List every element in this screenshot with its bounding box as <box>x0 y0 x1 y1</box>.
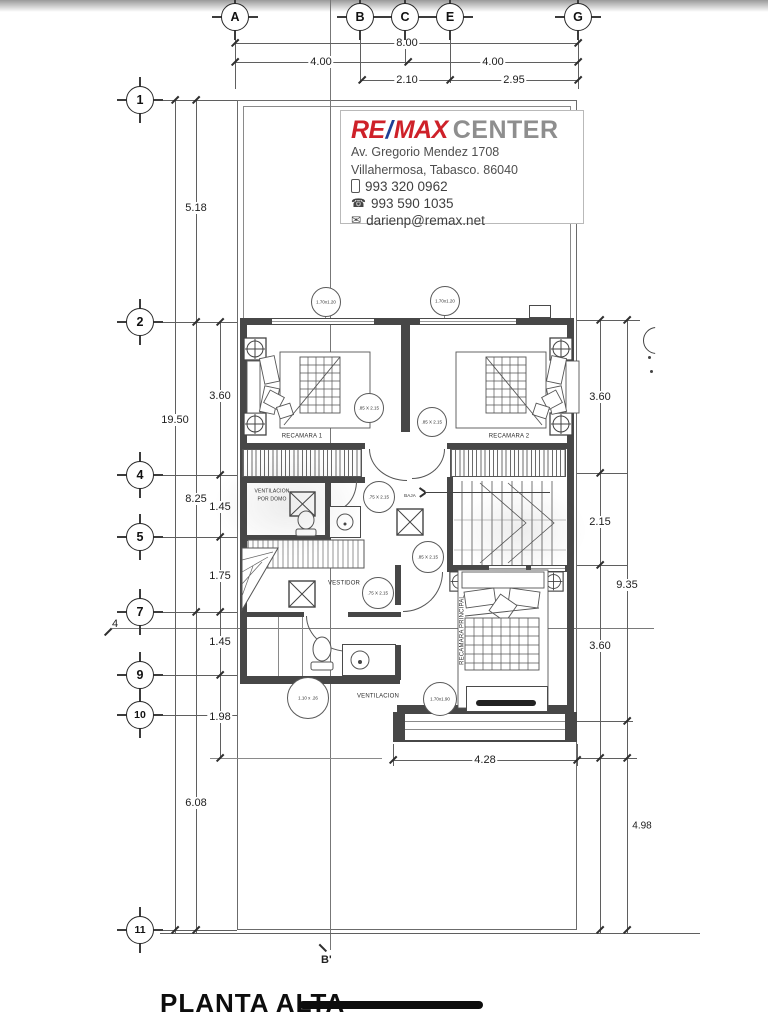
room-label-master: RECAMARA PRINCIPAL <box>457 572 468 688</box>
dim-chain-right-seg <box>600 320 601 933</box>
dim-ext-right-5 <box>577 758 637 759</box>
axis-label: 1 <box>126 86 154 114</box>
partial-circle-artifact <box>643 327 670 354</box>
toilet-vent-room <box>292 510 320 538</box>
dimension-label: 1.98 <box>207 711 232 723</box>
window-bedroom2 <box>420 318 516 325</box>
axis-bubble-11: 11 <box>117 907 163 953</box>
axis-label: 11 <box>126 916 154 944</box>
dimension-label: 2.95 <box>501 74 526 86</box>
telephone-icon: ☎ <box>351 196 366 211</box>
tag-door-bedroom1: .85 X 2.15 <box>354 393 384 423</box>
dot-artifact <box>650 370 653 373</box>
dim-chain-left-seg <box>220 322 221 758</box>
dimension-label: 6.08 <box>183 797 208 809</box>
section-b-arrow <box>319 944 327 952</box>
axis-bubble-5: 5 <box>117 514 163 560</box>
dimension-label: 4.98 <box>630 821 653 832</box>
dimension-label: 3.60 <box>207 390 232 402</box>
dimension-label: 4.00 <box>308 56 333 68</box>
remax-logo-re: RE <box>351 116 385 144</box>
axis-bubble-1: 1 <box>117 77 163 123</box>
office-address-line2: Villahermosa, Tabasco. 86040 <box>351 163 573 178</box>
remax-logo-max: MAX <box>394 116 448 144</box>
axis-label: G <box>564 3 592 31</box>
sink-vent-room <box>335 512 355 532</box>
dimension-label: 3.60 <box>587 391 612 403</box>
toilet-bathroom <box>306 636 338 674</box>
axis-bubble-10: 10 <box>117 692 163 738</box>
axis-bubble-2: 2 <box>117 299 163 345</box>
dimension-label: 1.45 <box>207 501 232 513</box>
master-band-cap-left <box>393 712 405 742</box>
axis-bubble-C: C <box>382 0 428 40</box>
stair-direction-line <box>424 492 550 493</box>
tag-window-bedroom2: 1.70x1.20 <box>430 286 460 316</box>
axis-bubble-G: G <box>555 0 601 40</box>
dimension-label: 4.28 <box>472 754 497 766</box>
axis-label: 9 <box>126 661 154 689</box>
remax-logo-slash: / <box>385 116 394 144</box>
office-phone-number: 993 590 1035 <box>371 195 454 212</box>
section-a-arrow <box>104 628 112 636</box>
mobile-phone-icon <box>351 179 360 193</box>
window-bedroom1 <box>272 318 374 325</box>
room-label-stairs-down: BAJA <box>397 491 423 502</box>
closet-bedroom2 <box>450 449 566 477</box>
master-band-line2 <box>405 729 565 730</box>
bed-bedroom1 <box>244 333 374 433</box>
dim-chain-right-total <box>627 320 628 933</box>
patio-bottom-line <box>210 758 382 759</box>
axis-bubble-4: 4 <box>117 452 163 498</box>
axis-bubble-A: A <box>212 0 258 40</box>
tag-door-vent-room: .75 X 2.15 <box>363 481 395 513</box>
section-b-prime-label: B' <box>321 954 332 966</box>
yard-inner-line-top <box>243 106 571 107</box>
remax-logo: RE/MAXCENTER <box>351 117 573 143</box>
master-band-cap-right <box>565 712 577 742</box>
mobile-phone-number: 993 320 0962 <box>365 178 448 195</box>
tag-window-bathroom: 1.10 x .26 <box>287 677 329 719</box>
email-address: darienp@remax.net <box>366 212 485 229</box>
dimension-label: 5.18 <box>183 202 208 214</box>
stairs-winder <box>240 538 366 612</box>
axis-label: 4 <box>126 461 154 489</box>
closet-bedroom1 <box>242 449 362 477</box>
dim-ext-right-1 <box>577 320 640 321</box>
axis-label: 7 <box>126 598 154 626</box>
sink-bathroom <box>348 648 372 672</box>
tag-door-hall: .85 X 2.15 <box>412 541 444 573</box>
dot-artifact <box>648 356 651 359</box>
dim-ext-bottom-left <box>393 744 394 766</box>
master-band-line1 <box>405 721 565 722</box>
bath-divider-line-2 <box>302 617 303 676</box>
tag-window-bedroom1: 1.70x1.20 <box>311 287 341 317</box>
axis-bubble-7: 7 <box>117 589 163 635</box>
room-label-vent-line2: POR DOMO <box>243 494 301 505</box>
title-strike-bar <box>299 1001 483 1009</box>
wall-bath-top-left <box>240 612 304 617</box>
dimension-label: 8.25 <box>183 493 208 505</box>
wall-bedroom-divider <box>401 318 410 432</box>
master-window-band <box>393 712 577 742</box>
skylight-hall <box>396 508 424 536</box>
dimension-label: 3.60 <box>587 640 612 652</box>
dim-baseline-bottom <box>160 933 700 934</box>
axis-label: A <box>221 3 249 31</box>
dimension-label: 1.45 <box>207 636 232 648</box>
dimension-label: 19.50 <box>159 414 191 426</box>
dim-chain-left-total <box>175 100 176 933</box>
axis-label: B <box>346 3 374 31</box>
dimension-label: 1.75 <box>207 570 232 582</box>
dimension-label: 4.00 <box>480 56 505 68</box>
dim-ext-bottom-right <box>577 744 578 766</box>
dim-ext-right-3 <box>577 565 627 566</box>
axis-bubble-E: E <box>427 0 473 40</box>
dimension-label: 2.15 <box>587 516 612 528</box>
tag-door-dressing: .75 X 2.15 <box>362 577 394 609</box>
dim-ext-right-2 <box>577 473 627 474</box>
room-label-bedroom2: RECAMARA 2 <box>475 431 542 442</box>
room-label-vent-shaft: VENTILACION <box>343 691 413 702</box>
remax-office-name: CENTER <box>453 116 559 144</box>
dimension-label: 2.10 <box>394 74 419 86</box>
email-icon: ✉ <box>351 213 361 228</box>
dimension-label: 9.35 <box>614 579 639 591</box>
remax-business-card: RE/MAXCENTER Av. Gregorio Mendez 1708 Vi… <box>340 110 584 224</box>
wall-dressing-right-upper <box>395 565 401 605</box>
office-address-line1: Av. Gregorio Mendez 1708 <box>351 145 573 160</box>
bath-divider-line-1 <box>278 617 279 676</box>
floor-plan-canvas: B' 4 RE/MAXCENTER Av. Gregorio Mendez 17… <box>0 0 768 1024</box>
axis-bubble-B: B <box>337 0 383 40</box>
bed-bedroom2 <box>452 333 582 433</box>
room-label-bedroom1: RECAMARA 1 <box>268 431 335 442</box>
yard-inner-line-left <box>243 106 244 318</box>
tv-screen <box>476 700 536 706</box>
axis-label: C <box>391 3 419 31</box>
tag-door-bedroom2: .85 X 2.15 <box>417 407 447 437</box>
axis-label: 10 <box>126 701 154 729</box>
tag-window-master: 1.70x1.90 <box>423 682 457 716</box>
axis-label: E <box>436 3 464 31</box>
tv-console <box>466 686 548 712</box>
ac-unit-marker <box>529 305 551 318</box>
axis-label: 2 <box>126 308 154 336</box>
axis-label: 5 <box>126 523 154 551</box>
wall-bath-top-right <box>348 612 401 617</box>
